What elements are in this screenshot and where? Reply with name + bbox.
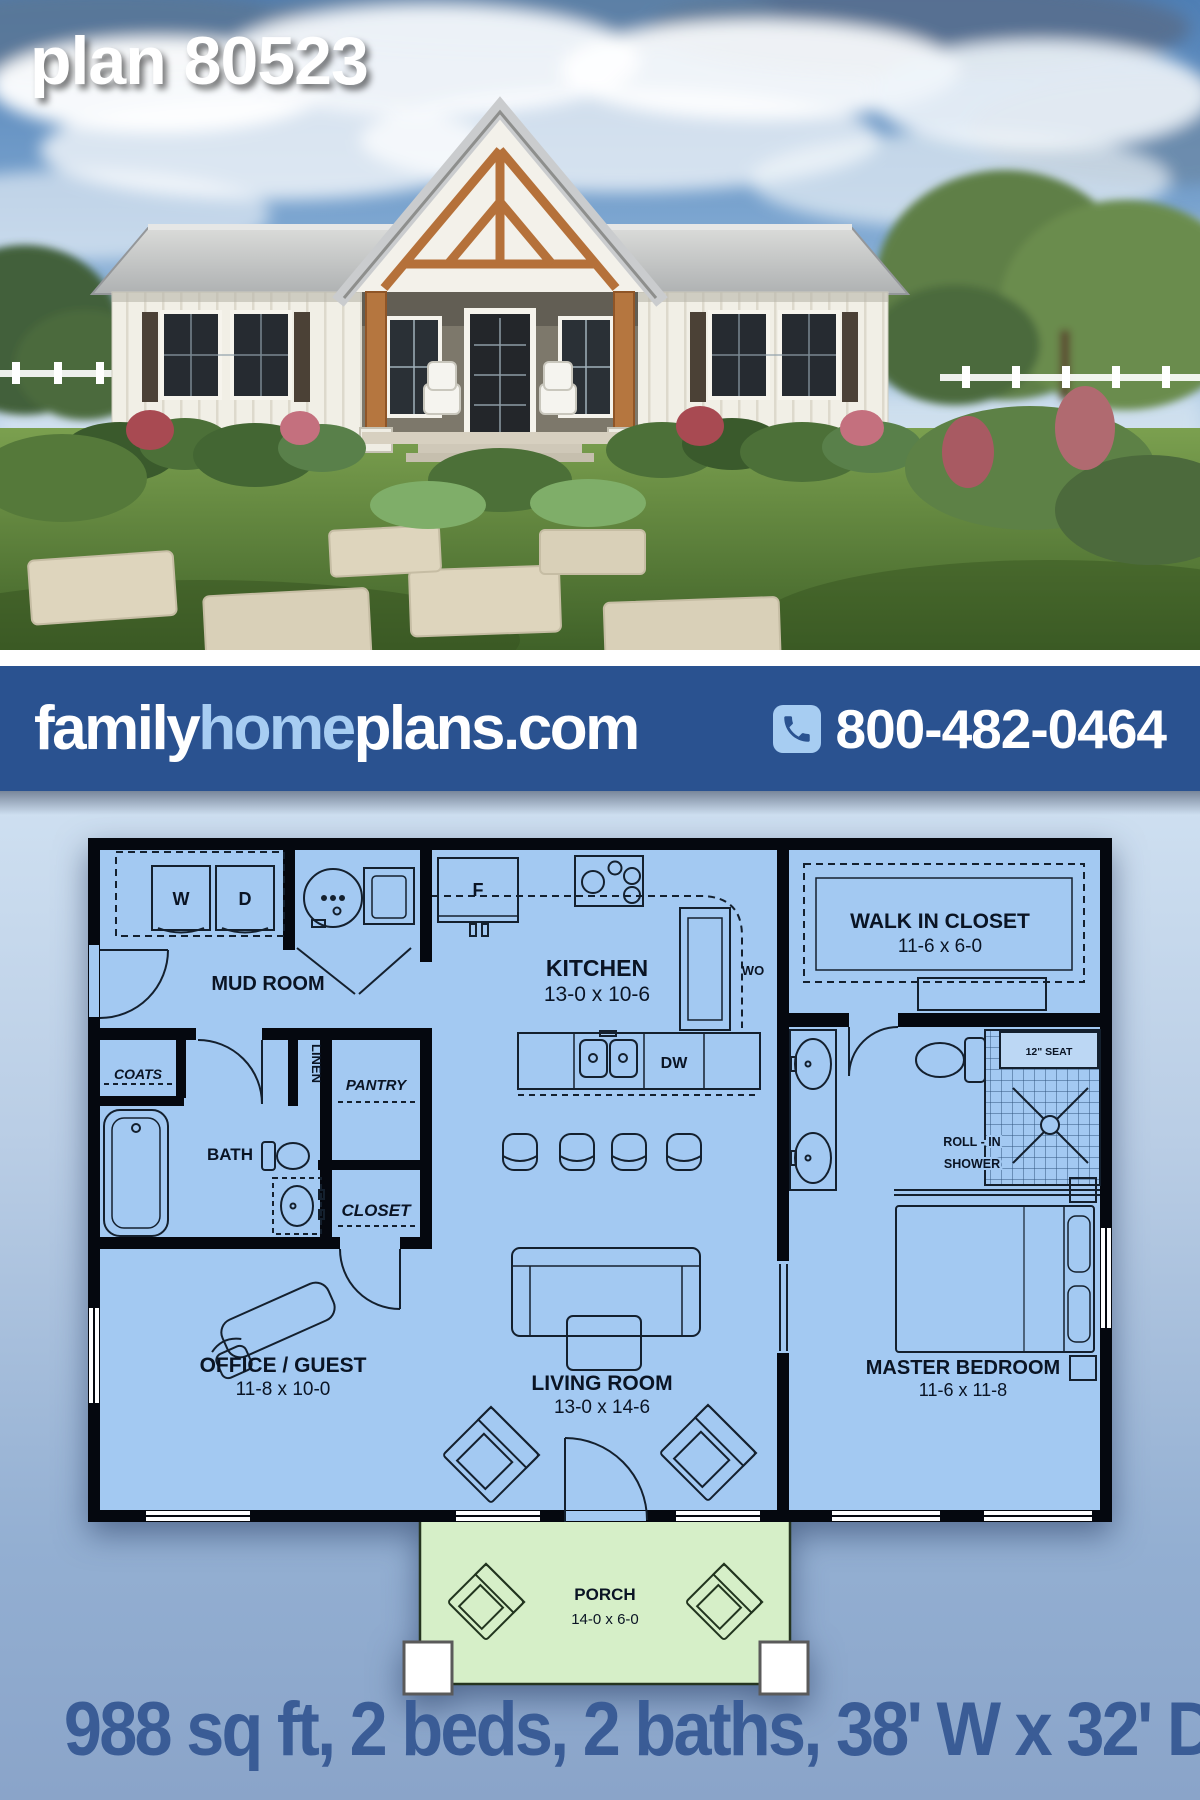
- dryer-label: D: [239, 889, 252, 909]
- shower-seat-label: 12" SEAT: [1026, 1046, 1073, 1058]
- fridge-label: F: [473, 880, 484, 900]
- white-divider: [0, 650, 1200, 666]
- phone-number: 800-482-0464: [835, 697, 1166, 761]
- walk-in-closet-dims: 11-6 x 6-0: [898, 936, 982, 957]
- living-room-dims: 13-0 x 14-6: [554, 1397, 650, 1418]
- bath-label: BATH: [207, 1145, 253, 1164]
- master-bedroom-dims: 11-6 x 11-8: [919, 1380, 1007, 1400]
- front-door: [464, 308, 536, 438]
- kitchen-dims: 13-0 x 10-6: [544, 983, 650, 1006]
- shower-label-1: ROLL - IN: [943, 1135, 1000, 1149]
- kitchen-label: KITCHEN: [546, 955, 648, 981]
- washer-label: W: [173, 889, 190, 909]
- office-label: OFFICE / GUEST: [200, 1354, 367, 1377]
- closet-label: CLOSET: [342, 1201, 413, 1220]
- walk-in-closet-label: WALK IN CLOSET: [850, 910, 1030, 933]
- living-room-label: LIVING ROOM: [531, 1372, 672, 1395]
- wall-oven-label: WO: [742, 963, 764, 978]
- office-dims: 11-8 x 10-0: [236, 1379, 331, 1400]
- coats-label: COATS: [114, 1066, 163, 1082]
- stats-text: 988 sq ft, 2 beds, 2 baths, 38' W x 32' …: [64, 1686, 1200, 1773]
- porch-label: PORCH: [574, 1585, 635, 1604]
- mud-room-label: MUD ROOM: [211, 973, 324, 995]
- floor-plan: PORCH 14-0 x 6-0: [88, 838, 1112, 1700]
- shower-label-2: SHOWER: [944, 1157, 1000, 1171]
- porch-dims: 14-0 x 6-0: [571, 1611, 639, 1628]
- linen-label: LINEN: [309, 1044, 324, 1083]
- banner-shadow: [0, 791, 1200, 815]
- logo-home: home: [198, 694, 353, 763]
- master-bedroom-label: MASTER BEDROOM: [866, 1357, 1060, 1379]
- logo-plans: plans.com: [354, 694, 638, 763]
- site-logo: familyhomeplans.com: [34, 693, 638, 764]
- phone-block: 800-482-0464: [773, 697, 1166, 761]
- brand-banner: familyhomeplans.com 800-482-0464: [0, 666, 1200, 791]
- phone-icon: [773, 705, 821, 753]
- plan-number-title: plan 80523: [30, 22, 368, 100]
- footer-stats: 988 sq ft, 2 beds, 2 baths, 38' W x 32' …: [0, 1686, 1200, 1773]
- dishwasher-label: DW: [661, 1055, 689, 1072]
- logo-family: family: [34, 694, 198, 763]
- pantry-label: PANTRY: [346, 1077, 408, 1094]
